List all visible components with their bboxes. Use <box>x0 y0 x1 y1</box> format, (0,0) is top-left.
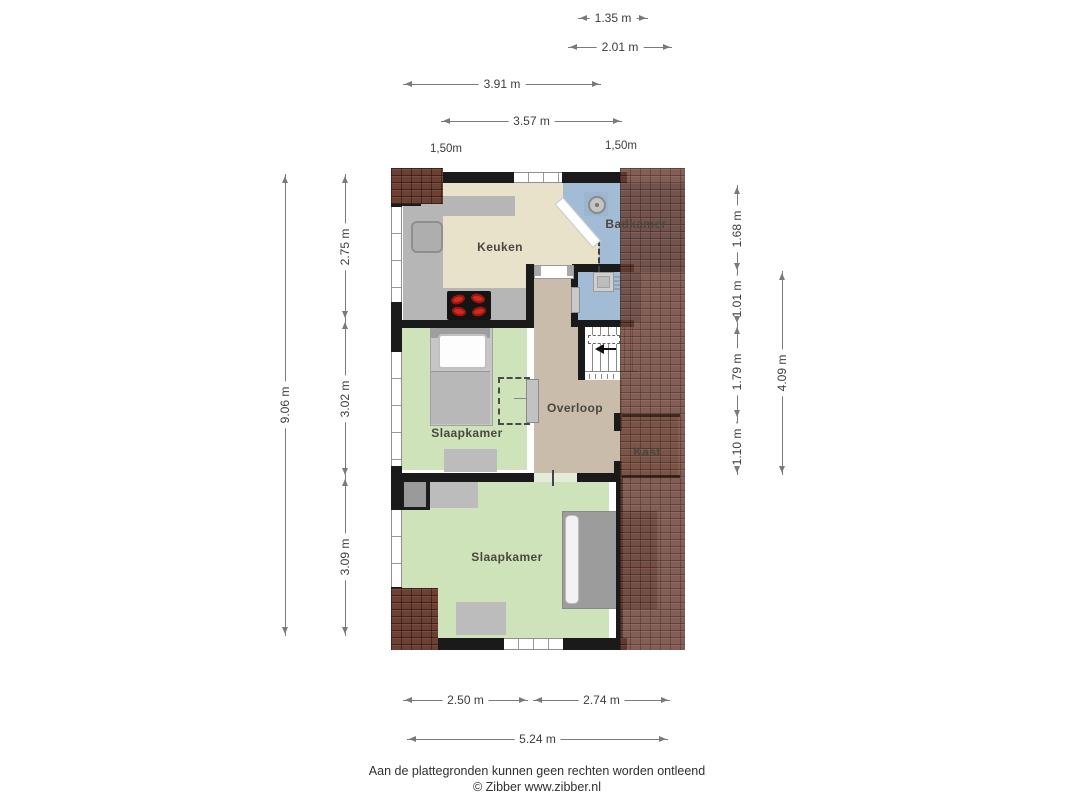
window-slaapkamer-2 <box>391 510 402 587</box>
dimension-text: 1,50m <box>430 143 462 155</box>
kast-outline-bottom <box>622 475 680 478</box>
wall-bedrooms <box>396 473 622 482</box>
room-label-kast: Kast <box>633 445 661 459</box>
dimension-line: 3.02 m <box>345 320 346 477</box>
door-slaapkamer-2-gap <box>534 473 577 482</box>
window-bottom <box>504 638 563 650</box>
roofline-dashed <box>598 240 600 272</box>
dimension-label: 3.02 m <box>339 375 353 422</box>
window-kitchen <box>391 207 402 302</box>
kitchen-counter-left <box>403 196 443 320</box>
dimension-line: 5.24 m <box>407 739 668 740</box>
roof-tiles-bottomleft <box>391 588 438 650</box>
dimension-label: 1.35 m <box>590 12 637 26</box>
dimension-label: 9.06 m <box>279 382 293 429</box>
dimension-line: 1.10 m <box>737 419 738 475</box>
furniture-dresser <box>444 449 497 472</box>
dimension-line: 3.91 m <box>403 84 601 85</box>
dimension-line: 1.01 m <box>737 272 738 325</box>
wall-kitchen-right <box>526 264 534 328</box>
dimension-label: 4.09 m <box>776 350 790 397</box>
burner-icon <box>450 293 466 306</box>
bed-pillow <box>438 334 487 369</box>
wall-kitchen-bedroom <box>396 320 534 328</box>
stair-dashed-line <box>588 335 620 344</box>
stairs-direction-stem <box>599 348 616 350</box>
dimension-label: 2.74 m <box>578 694 625 708</box>
room-label-slaapkamer-1: Slaapkamer <box>431 426 502 440</box>
dimension-label: 1.68 m <box>731 205 745 252</box>
dimension-text: 1,50m <box>605 140 637 152</box>
dimension-line: 4.09 m <box>782 271 783 475</box>
dimension-label: 1.10 m <box>731 424 745 471</box>
room-label-keuken: Keuken <box>477 240 523 254</box>
dimension-label: 3.91 m <box>479 78 526 92</box>
dimension-line: 1.79 m <box>737 325 738 419</box>
dimension-label: 3.09 m <box>339 533 353 580</box>
room-label-overloop: Overloop <box>547 401 603 415</box>
floorplan <box>391 168 685 650</box>
door-handle-line <box>514 398 526 399</box>
burner-icon <box>471 305 487 317</box>
door-toilet <box>571 287 580 313</box>
dimension-label: 2.75 m <box>339 224 353 271</box>
door-slaapkamer-2-leaf <box>552 470 554 486</box>
dimension-label: 3.57 m <box>508 115 555 129</box>
door-slaapkamer-1 <box>526 379 539 423</box>
washbasin-icon <box>593 272 614 292</box>
bed-blanket <box>431 371 490 424</box>
furniture-dresser <box>456 602 506 635</box>
footer-copyright: © Zibber www.zibber.nl <box>237 780 837 794</box>
dimension-line: 2.01 m <box>568 47 672 48</box>
cooktop-icon <box>447 291 491 320</box>
dimension-label: 5.24 m <box>514 733 561 747</box>
bed-pillow <box>565 515 579 604</box>
alcove-cabinet <box>404 480 426 507</box>
burner-icon <box>451 306 467 318</box>
dimension-label: 2.50 m <box>442 694 489 708</box>
dimension-line: 3.57 m <box>441 121 622 122</box>
roof-tiles-topleft <box>391 168 443 204</box>
dimension-line: 2.75 m <box>345 174 346 320</box>
burner-icon <box>470 292 486 304</box>
dimension-label: 1.79 m <box>731 349 745 396</box>
dimension-line: 1.68 m <box>737 185 738 272</box>
wall-stairs-left <box>578 327 585 380</box>
door-keuken <box>534 265 574 279</box>
dimension-line: 2.74 m <box>533 700 670 701</box>
dimension-line: 1.35 m <box>578 18 648 19</box>
room-label-slaapkamer-2: Slaapkamer <box>471 550 542 564</box>
sink-icon <box>411 221 443 253</box>
stair-bottom-ticks <box>589 374 619 379</box>
dimension-label: 2.01 m <box>597 41 644 55</box>
dimension-line: 2.50 m <box>403 700 528 701</box>
footer-disclaimer: Aan de plattegronden kunnen geen rechten… <box>237 764 837 778</box>
roof-tiles-right <box>620 168 685 650</box>
bed-icon <box>430 327 493 426</box>
floorplan-canvas: Keuken Badkamer Overloop Kast Slaapkamer… <box>0 0 1067 800</box>
room-label-badkamer: Badkamer <box>605 217 666 231</box>
kast-outline-top <box>622 414 680 417</box>
window-slaapkamer-1 <box>391 352 402 466</box>
dimension-line: 9.06 m <box>285 174 286 636</box>
window-top <box>514 172 562 183</box>
furniture-dresser <box>430 481 478 508</box>
dimension-line: 3.09 m <box>345 477 346 636</box>
dimension-label: 1.01 m <box>731 275 745 322</box>
shower-icon <box>588 196 606 214</box>
